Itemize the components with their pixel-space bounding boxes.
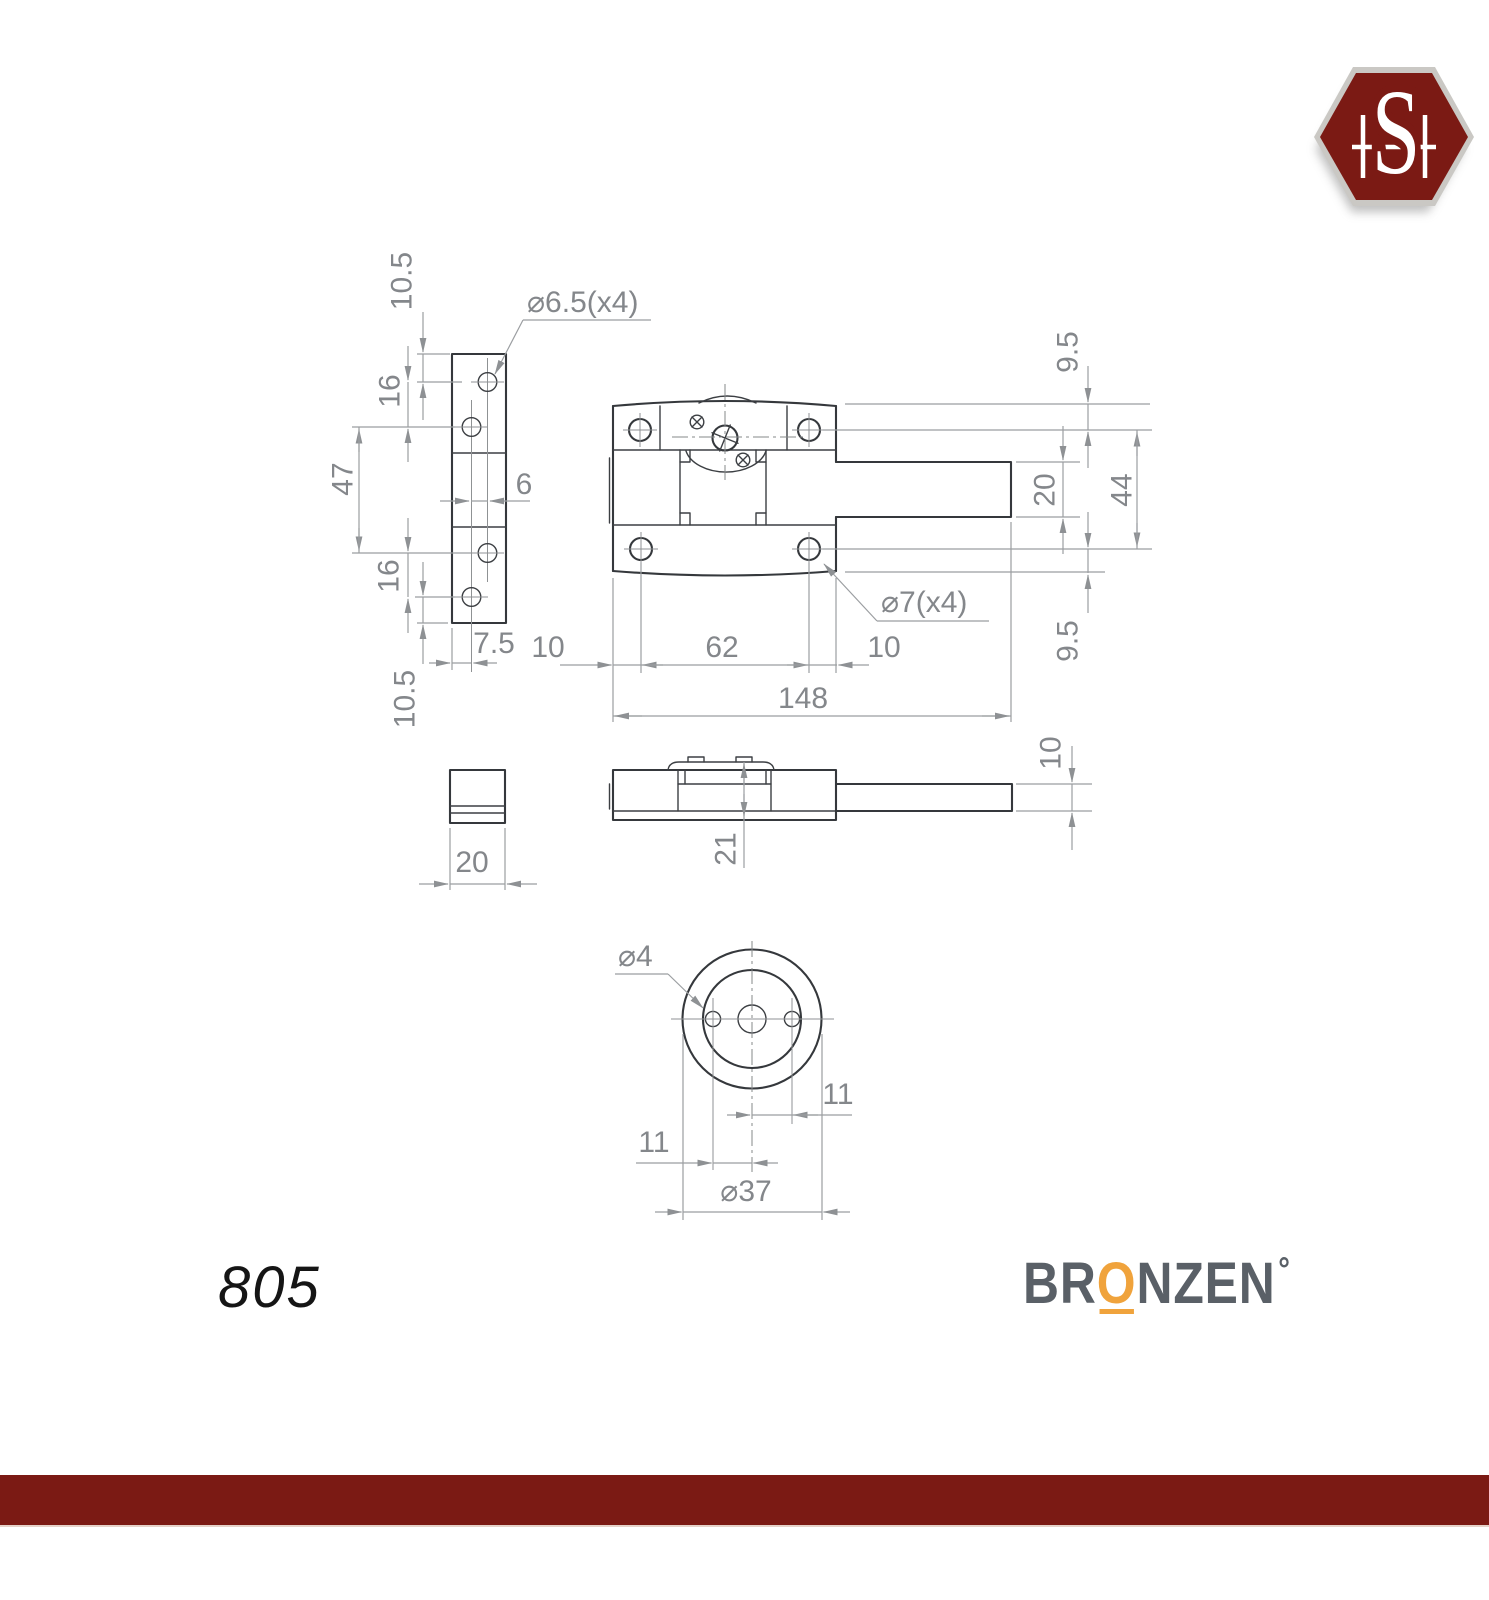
dim-strip-hole-stagger: 6 xyxy=(516,468,533,501)
callout-strip-holes: ⌀6.5(x4) xyxy=(527,286,638,319)
side-view xyxy=(610,757,1013,820)
company-logo: S xyxy=(1294,53,1484,228)
strip-dimensions: 10.5 16 47 16 10.5 6 7.5 ⌀6.5(x4 xyxy=(327,252,652,728)
dim-front-bolt-height: 20 xyxy=(1029,473,1062,506)
dim-front-inset-left: 10 xyxy=(531,631,564,664)
dim-front-total-length: 148 xyxy=(778,682,828,715)
bolt-rod xyxy=(836,462,1011,517)
model-number: 805 xyxy=(218,1254,321,1321)
dim-front-bottom-offset: 9.5 xyxy=(1052,620,1085,662)
dim-front-hole-span: 62 xyxy=(705,631,738,664)
brand-text-post: NZEN xyxy=(1136,1251,1275,1316)
dim-front-top-offset: 9.5 xyxy=(1052,331,1085,373)
dim-side-height: 21 xyxy=(710,832,743,865)
brand-logo: BRONZEN° xyxy=(1023,1250,1291,1317)
dim-strip-top-offset: 10.5 xyxy=(386,252,419,310)
brand-degree-mark: ° xyxy=(1278,1251,1291,1289)
dim-strip-hole-inset: 7.5 xyxy=(473,627,515,660)
brand-text-pre: BR xyxy=(1023,1251,1097,1316)
bolt-rod-side xyxy=(836,784,1012,811)
dim-front-inset-right: 10 xyxy=(867,631,900,664)
callout-front-holes: ⌀7(x4) xyxy=(881,586,967,619)
sh-hexagon-icon: S xyxy=(1294,53,1484,228)
dim-strip-bottom-offset: 10.5 xyxy=(389,670,422,728)
strip-side-view xyxy=(450,770,505,823)
callout-rosette-holes: ⌀4 xyxy=(618,940,653,973)
brand-letter-o: O xyxy=(1097,1250,1137,1317)
dim-strip-hole-gap-bottom: 16 xyxy=(373,559,406,592)
dim-rosette-offset-right: 11 xyxy=(822,1078,853,1111)
dim-rosette-offset-left: 11 xyxy=(638,1126,669,1159)
strip-side-dimensions: 20 xyxy=(419,828,537,890)
front-dimensions: 10 62 10 148 9.5 20 44 9.5 ⌀7(x4) xyxy=(531,331,1152,722)
strip-front-view xyxy=(452,354,506,672)
dim-rosette-diameter: ⌀37 xyxy=(720,1175,771,1208)
dim-front-hole-row-span: 44 xyxy=(1106,473,1139,506)
technical-drawing: 10.5 16 47 16 10.5 6 7.5 ⌀6.5(x4 xyxy=(0,0,1489,1600)
rosette-dimensions: 11 11 ⌀37 ⌀4 xyxy=(615,940,854,1220)
monogram-s: S xyxy=(1372,64,1421,199)
dim-strip-thickness: 20 xyxy=(455,846,488,879)
front-view xyxy=(610,384,1012,576)
side-dimensions: 21 10 xyxy=(710,736,1093,868)
dim-strip-hole-gap-top: 16 xyxy=(374,374,407,407)
footer-accent-band xyxy=(0,1475,1489,1527)
dim-strip-hole-span: 47 xyxy=(327,462,360,495)
rosette-view xyxy=(671,941,834,1172)
dim-side-bolt-thickness: 10 xyxy=(1035,736,1068,769)
